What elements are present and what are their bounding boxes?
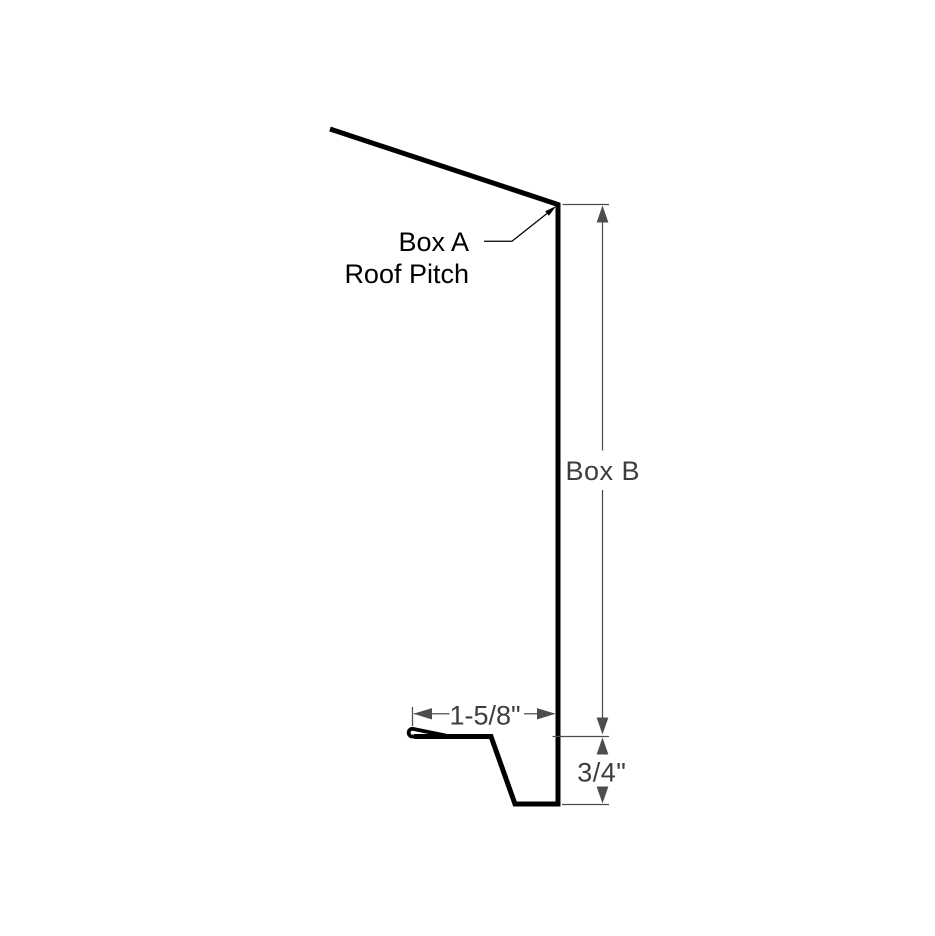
svg-text:Box A: Box A bbox=[398, 227, 469, 257]
svg-text:1-5/8": 1-5/8" bbox=[450, 700, 521, 730]
svg-text:3/4": 3/4" bbox=[577, 758, 626, 788]
svg-text:Box B: Box B bbox=[566, 456, 641, 486]
svg-text:Roof Pitch: Roof Pitch bbox=[344, 259, 469, 289]
